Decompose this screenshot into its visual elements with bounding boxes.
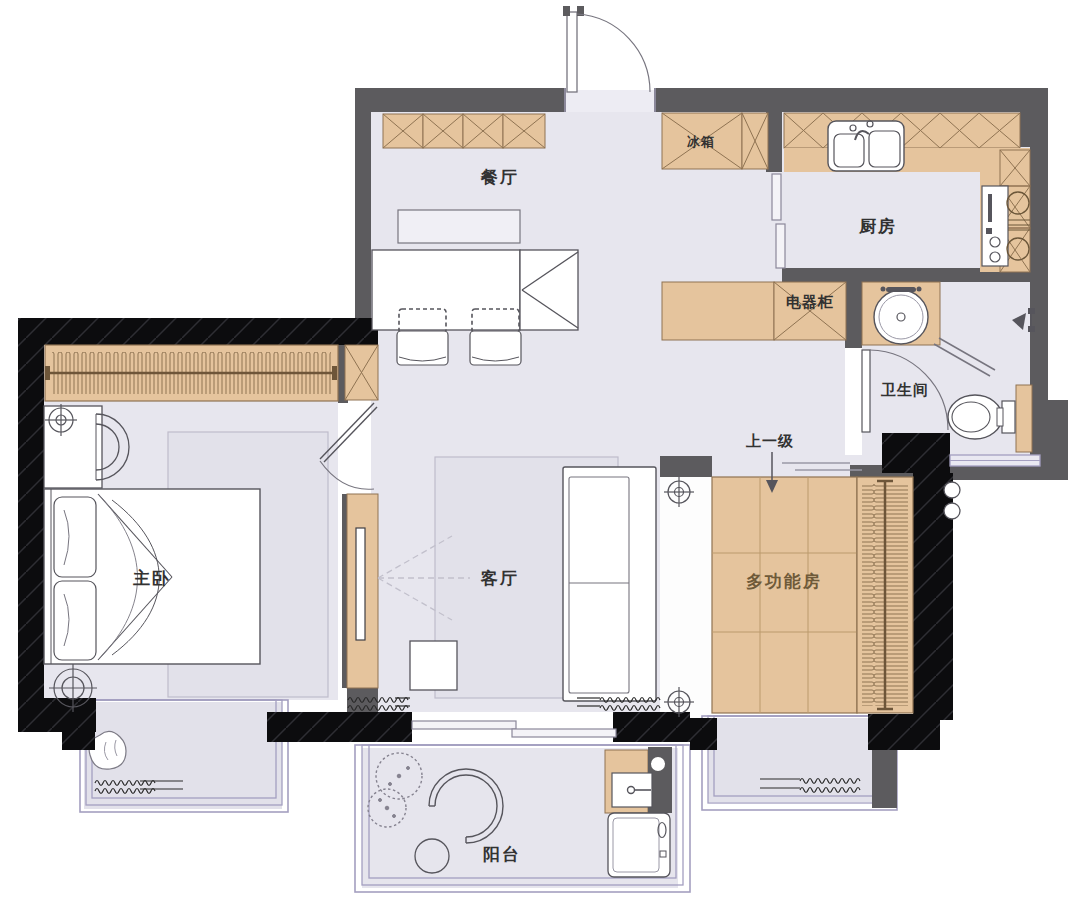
kitchen-sink-icon	[828, 121, 904, 171]
label-multi-room: 多功能房	[746, 571, 822, 591]
appliance-cabinet-icon: 电器柜	[662, 282, 846, 340]
balcony-sliding-door-icon	[412, 721, 616, 737]
label-step-up: 上一级	[745, 432, 794, 450]
label-fridge: 冰箱	[686, 134, 715, 149]
bay-window-right	[702, 716, 897, 810]
washing-machine-icon	[608, 813, 670, 877]
floor-plan: 阳台	[0, 0, 1080, 899]
label-appliance-cabinet: 电器柜	[786, 293, 834, 311]
label-living: 客厅	[480, 568, 519, 588]
laundry-sink-icon	[605, 747, 672, 813]
label-balcony: 阳台	[483, 844, 521, 864]
label-kitchen: 厨房	[858, 216, 897, 236]
corner-cabinet-icon	[345, 345, 378, 400]
wardrobe-icon	[45, 345, 338, 401]
label-master-bedroom: 主卧	[133, 568, 171, 588]
label-bathroom: 卫生间	[880, 381, 929, 399]
bathroom-window-icon	[950, 455, 1040, 466]
tv-icon	[356, 528, 365, 640]
label-dining: 餐厅	[480, 167, 519, 187]
storage-cabinet-icon	[383, 114, 545, 148]
side-table-icon	[410, 641, 457, 690]
balcony: 阳台	[355, 745, 690, 892]
wall-shelf-icon	[398, 210, 520, 243]
fridge-icon: 冰箱	[662, 113, 768, 169]
dining-table-icon	[372, 250, 578, 330]
sofa-icon	[563, 467, 656, 701]
tatami-platform-icon	[712, 477, 857, 713]
bay-window-left	[80, 700, 288, 812]
wardrobe-icon	[857, 477, 913, 713]
floor-plan-svg: 阳台	[0, 0, 1080, 899]
